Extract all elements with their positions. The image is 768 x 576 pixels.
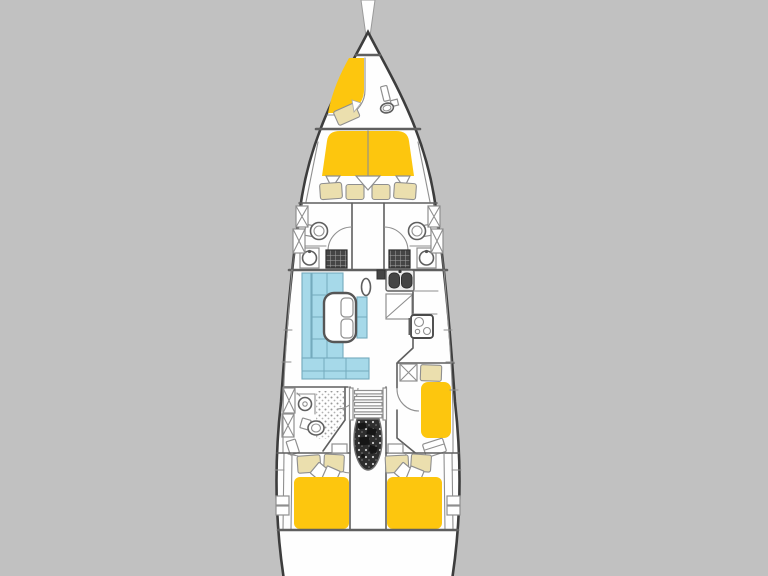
galley-stove bbox=[409, 315, 434, 338]
toilet-bowl bbox=[308, 421, 324, 435]
seat-cushion-4 bbox=[393, 182, 416, 199]
floor-plan-canvas bbox=[0, 0, 768, 576]
seat-cushion-3 bbox=[372, 185, 390, 200]
salon-table bbox=[324, 293, 356, 342]
stair-rail-right bbox=[383, 388, 387, 420]
port-shelf-box bbox=[276, 506, 289, 515]
wardrobe-port-2 bbox=[293, 229, 305, 253]
shower-grate-port bbox=[326, 250, 347, 268]
starboard-shelf-box bbox=[447, 506, 460, 515]
basin-faucet bbox=[308, 250, 311, 253]
single-berth bbox=[421, 382, 451, 438]
nightstand-starboard bbox=[388, 444, 403, 453]
single-cabin-wardrobe bbox=[400, 364, 417, 381]
sink-faucet bbox=[398, 270, 401, 273]
stair-step-3 bbox=[355, 403, 383, 406]
stair-rail-left bbox=[350, 388, 354, 420]
table-leaf-2 bbox=[341, 319, 353, 338]
seat-cushion-1 bbox=[319, 182, 342, 199]
wardrobe-port-1 bbox=[296, 206, 308, 227]
wardrobe-starboard-2 bbox=[431, 229, 443, 253]
double-berth-starboard bbox=[387, 477, 442, 529]
day-head-wardrobe-2 bbox=[282, 414, 294, 437]
toilet-bowl bbox=[409, 223, 426, 240]
basin-bowl bbox=[299, 398, 312, 411]
sofa-l-section bbox=[302, 358, 369, 379]
galley-double-sink bbox=[386, 270, 414, 291]
shower-grate-starboard bbox=[389, 250, 410, 268]
toilet-bowl bbox=[311, 223, 328, 240]
engine-compartment bbox=[354, 419, 382, 470]
galley-locker bbox=[377, 270, 385, 279]
port-shelf-box bbox=[276, 496, 289, 505]
day-head-wardrobe-1 bbox=[283, 388, 295, 413]
sink-basin-2 bbox=[402, 273, 413, 288]
basin-faucet bbox=[425, 250, 428, 253]
galley-cabinet bbox=[386, 294, 412, 319]
engine-part bbox=[370, 450, 374, 454]
stove-handle bbox=[409, 318, 411, 335]
single-berth-pillow bbox=[420, 365, 442, 382]
double-berth-port bbox=[294, 477, 349, 529]
sofa-backrest bbox=[302, 273, 311, 369]
engine-part bbox=[361, 454, 365, 458]
stair-step-5 bbox=[355, 415, 383, 418]
starboard-shelf-box bbox=[447, 496, 460, 505]
sink-basin-1 bbox=[389, 273, 400, 288]
nightstand-port bbox=[332, 444, 347, 453]
aft-cabin-port-bedding bbox=[294, 454, 349, 529]
stair-step-2 bbox=[355, 397, 383, 400]
engine-part bbox=[359, 436, 370, 445]
wardrobe-starboard-1 bbox=[428, 206, 440, 227]
table-leaf-1 bbox=[341, 298, 353, 317]
stair-step-1 bbox=[355, 391, 383, 394]
stair-step-4 bbox=[355, 409, 383, 412]
seat-cushion-2 bbox=[346, 185, 364, 200]
yacht-floor-plan bbox=[0, 0, 768, 576]
mast-post bbox=[362, 279, 371, 296]
companionway-stairs bbox=[350, 388, 387, 420]
